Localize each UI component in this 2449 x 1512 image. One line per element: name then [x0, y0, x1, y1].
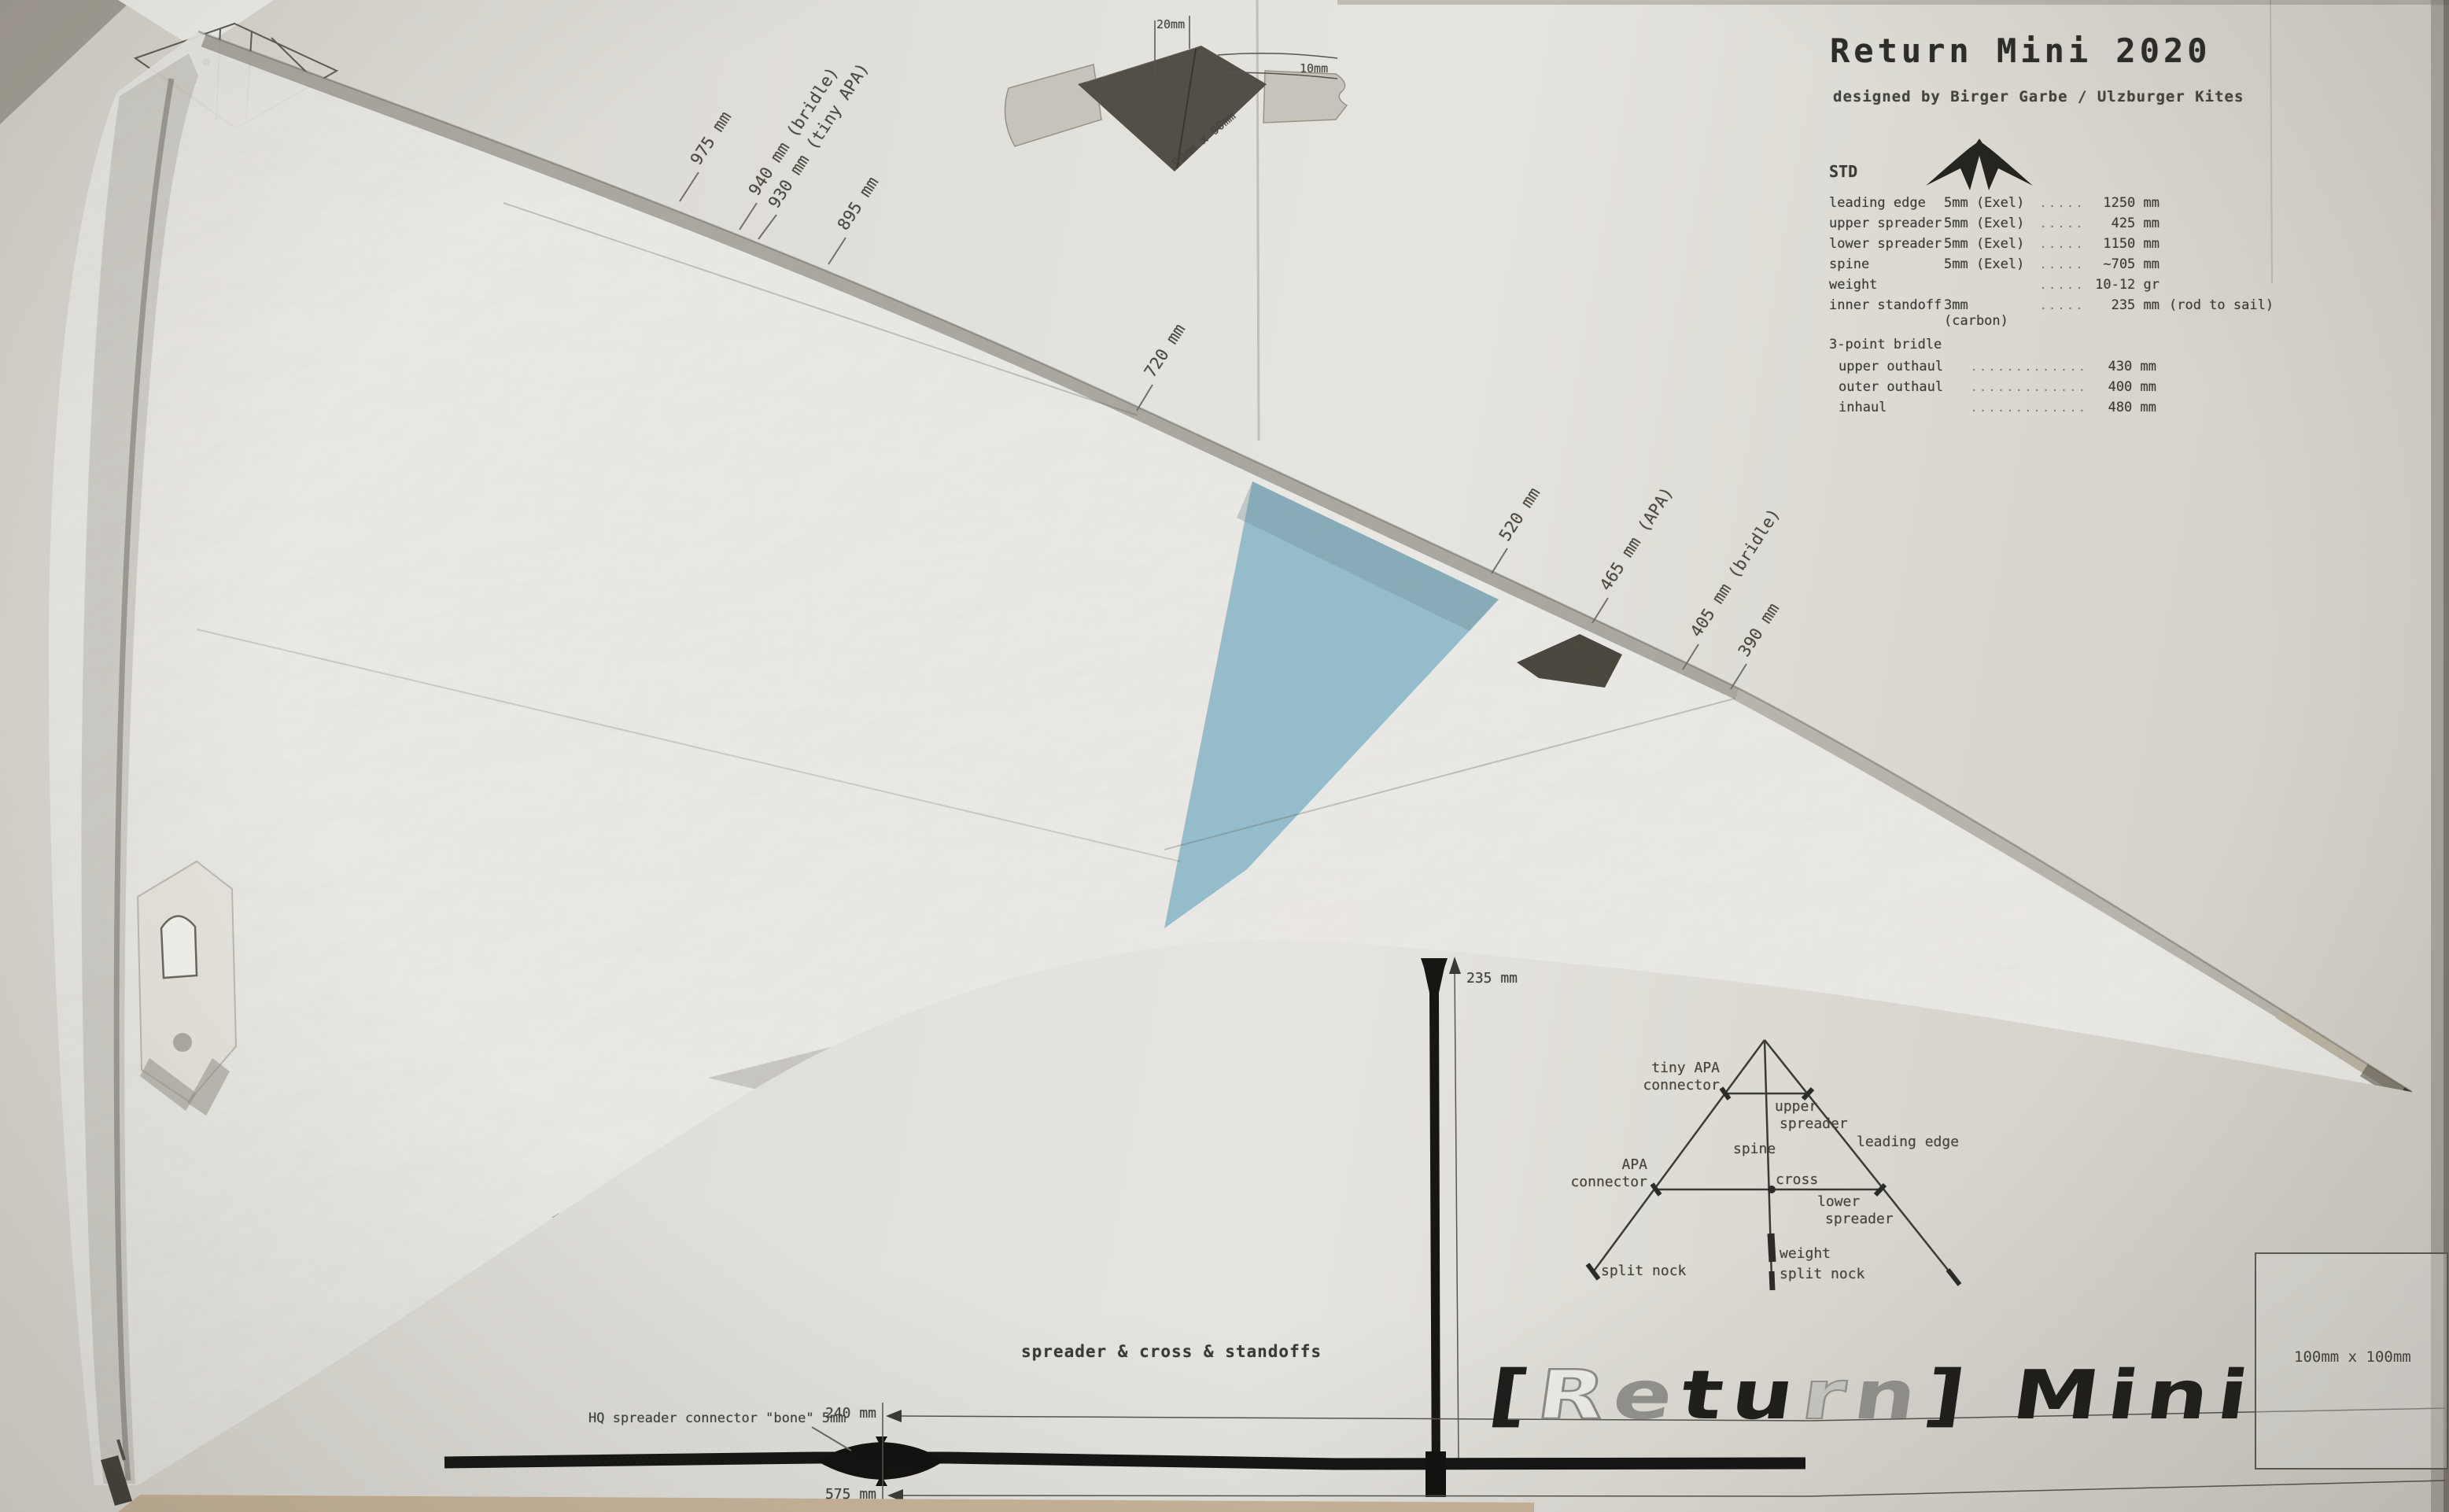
logo-letter: u	[1726, 1356, 1808, 1435]
spec-table: leading edge 5mm (Exel) .......... 1250 …	[1829, 195, 2274, 318]
spec-label: leading edge	[1829, 195, 1944, 211]
label-tiny-apa-connector: tiny APA connector	[1605, 1060, 1720, 1094]
standoff-dim-line	[1455, 966, 1459, 1460]
cross-fitting-tab	[1426, 1451, 1446, 1497]
label-split-nock-bottom: split nock	[1780, 1266, 1864, 1282]
spec-size: 3mm (carbon)	[1944, 297, 2040, 329]
dim-10mm-leader-a	[1218, 53, 1337, 58]
dots: ......................	[1971, 402, 2089, 415]
spine-fitting-ball	[173, 1033, 192, 1052]
spec-label: inner standoff	[1829, 297, 1944, 313]
spec-size: 5mm (Exel)	[1944, 195, 2040, 211]
spec-label: spine	[1829, 256, 1944, 272]
spine-pocket-opening	[161, 916, 197, 978]
brand-kite-icon	[1926, 138, 2033, 190]
paper-top-edge	[1337, 0, 2449, 5]
standoff-rod-drawing	[1421, 958, 1448, 1495]
label-cross: cross	[1776, 1171, 1818, 1188]
spec-label: upper spreader	[1829, 216, 1944, 231]
dots: ........	[2040, 300, 2087, 312]
bridle-value: 400 mm	[2089, 379, 2156, 395]
spec-value: 425 mm	[2087, 216, 2159, 231]
logo-letter: n	[1849, 1356, 1931, 1435]
label-spine: spine	[1733, 1141, 1776, 1157]
dim-575-label: 575 mm	[817, 1486, 876, 1503]
label-lower-spreader: lower spreader	[1817, 1193, 1894, 1228]
cross-junction-dot	[1768, 1186, 1776, 1193]
spec-value: ~705 mm	[2087, 256, 2159, 272]
label-line: tiny APA	[1605, 1060, 1720, 1077]
dim-20mm-label: 20mm	[1156, 17, 1185, 31]
variant-label: STD	[1829, 162, 1857, 181]
spec-row: lower spreader 5mm (Exel) .......... 115…	[1829, 236, 2274, 256]
spec-row: upper spreader 5mm (Exel) .......... 425…	[1829, 216, 2274, 236]
spec-row: leading edge 5mm (Exel) .......... 1250 …	[1829, 195, 2274, 216]
dots: ..........	[2040, 238, 2087, 251]
bridle-label: upper outhaul	[1829, 359, 1971, 374]
dots: ..........	[2040, 197, 2087, 210]
bridle-label: outer outhaul	[1829, 379, 1971, 395]
spec-row: weight .................... 10-12 gr	[1829, 277, 2274, 297]
dim-240-label: 240 mm	[817, 1405, 876, 1422]
spec-row: spine 5mm (Exel) .......... ~705 mm	[1829, 256, 2274, 277]
bridle-row: upper outhaul ...................... 430…	[1829, 359, 2156, 379]
sleeve-band-left	[1005, 65, 1102, 146]
label-line: APA	[1564, 1156, 1647, 1174]
dots: ..........	[2040, 218, 2087, 230]
bone-connector-label: HQ spreader connector "bone" 5mm	[588, 1411, 846, 1426]
bridle-row: outer outhaul ...................... 400…	[1829, 379, 2156, 400]
spec-value: 1150 mm	[2087, 236, 2159, 252]
standoff-dim-label: 235 mm	[1466, 970, 1518, 986]
scale-box-label: 100mm x 100mm	[2294, 1348, 2411, 1366]
label-leading-edge: leading edge	[1857, 1134, 1959, 1150]
spec-size: 5mm (Exel)	[1944, 236, 2040, 252]
label-line: upper	[1775, 1098, 1848, 1116]
bridle-title-row: 3-point bridle	[1829, 337, 2156, 359]
label-weight: weight	[1780, 1245, 1831, 1262]
dots: ......................	[1971, 361, 2089, 374]
spreader-caption: spreader & cross & standoffs	[1021, 1342, 1322, 1361]
label-line: connector	[1605, 1077, 1720, 1094]
logo-word: Mini	[1968, 1356, 2262, 1435]
plan-title: Return Mini 2020	[1830, 31, 2211, 70]
label-upper-spreader: upper spreader	[1775, 1098, 1848, 1133]
dots: ....................	[2040, 279, 2087, 292]
spec-size: 5mm (Exel)	[1944, 256, 2040, 272]
dots: ......................	[1971, 382, 2089, 394]
scale-reference-box: 100mm x 100mm	[2255, 1252, 2448, 1470]
spec-label: weight	[1829, 277, 1944, 293]
return-mini-logo: [Return] Mini	[1484, 1356, 2262, 1435]
bridle-label: inhaul	[1829, 400, 1971, 415]
label-line: spreader	[1817, 1211, 1894, 1228]
label-line: spreader	[1775, 1116, 1848, 1133]
kite-plan-photo: Return Mini 2020 designed by Birger Garb…	[0, 0, 2449, 1512]
bridle-title: 3-point bridle	[1829, 337, 1942, 352]
nose-reinforcement-patch	[1078, 46, 1267, 171]
dim-240-arrow	[886, 1410, 902, 1422]
spreader-rod-drawing	[444, 1458, 1805, 1464]
spec-value: 235 mm	[2087, 297, 2159, 313]
bridle-row: inhaul ...................... 480 mm	[1829, 400, 2156, 420]
spec-value: 1250 mm	[2087, 195, 2159, 211]
spec-note: (rod to sail)	[2169, 297, 2274, 313]
label-split-nock-left: split nock	[1601, 1263, 1686, 1279]
logo-letter: e	[1608, 1356, 1687, 1435]
nose-corner-detail	[1005, 16, 1348, 171]
spec-size: 5mm (Exel)	[1944, 216, 2040, 231]
standoff-dim-arrow	[1449, 957, 1461, 974]
label-line: lower	[1817, 1193, 1894, 1211]
bone-label-leader	[812, 1427, 851, 1451]
dots: ..........	[2040, 259, 2087, 271]
spec-row: inner standoff 3mm (carbon) ........ 235…	[1829, 297, 2274, 318]
spec-label: lower spreader	[1829, 236, 1944, 252]
label-apa-connector: APA connector	[1564, 1156, 1647, 1191]
bridle-table: 3-point bridle upper outhaul ...........…	[1829, 337, 2156, 420]
bridle-value: 430 mm	[2089, 359, 2156, 374]
logo-letter: R	[1532, 1356, 1619, 1435]
paper-crease-line	[1257, 0, 1259, 441]
bone-connector	[817, 1442, 944, 1480]
dim-10mm-label: 10mm	[1300, 61, 1328, 76]
spec-value: 10-12 gr	[2087, 277, 2159, 293]
label-line: connector	[1564, 1174, 1647, 1191]
plan-subtitle: designed by Birger Garbe / Ulzburger Kit…	[1833, 88, 2244, 105]
bridle-value: 480 mm	[2089, 400, 2156, 415]
dim-575-line	[903, 1481, 2445, 1496]
